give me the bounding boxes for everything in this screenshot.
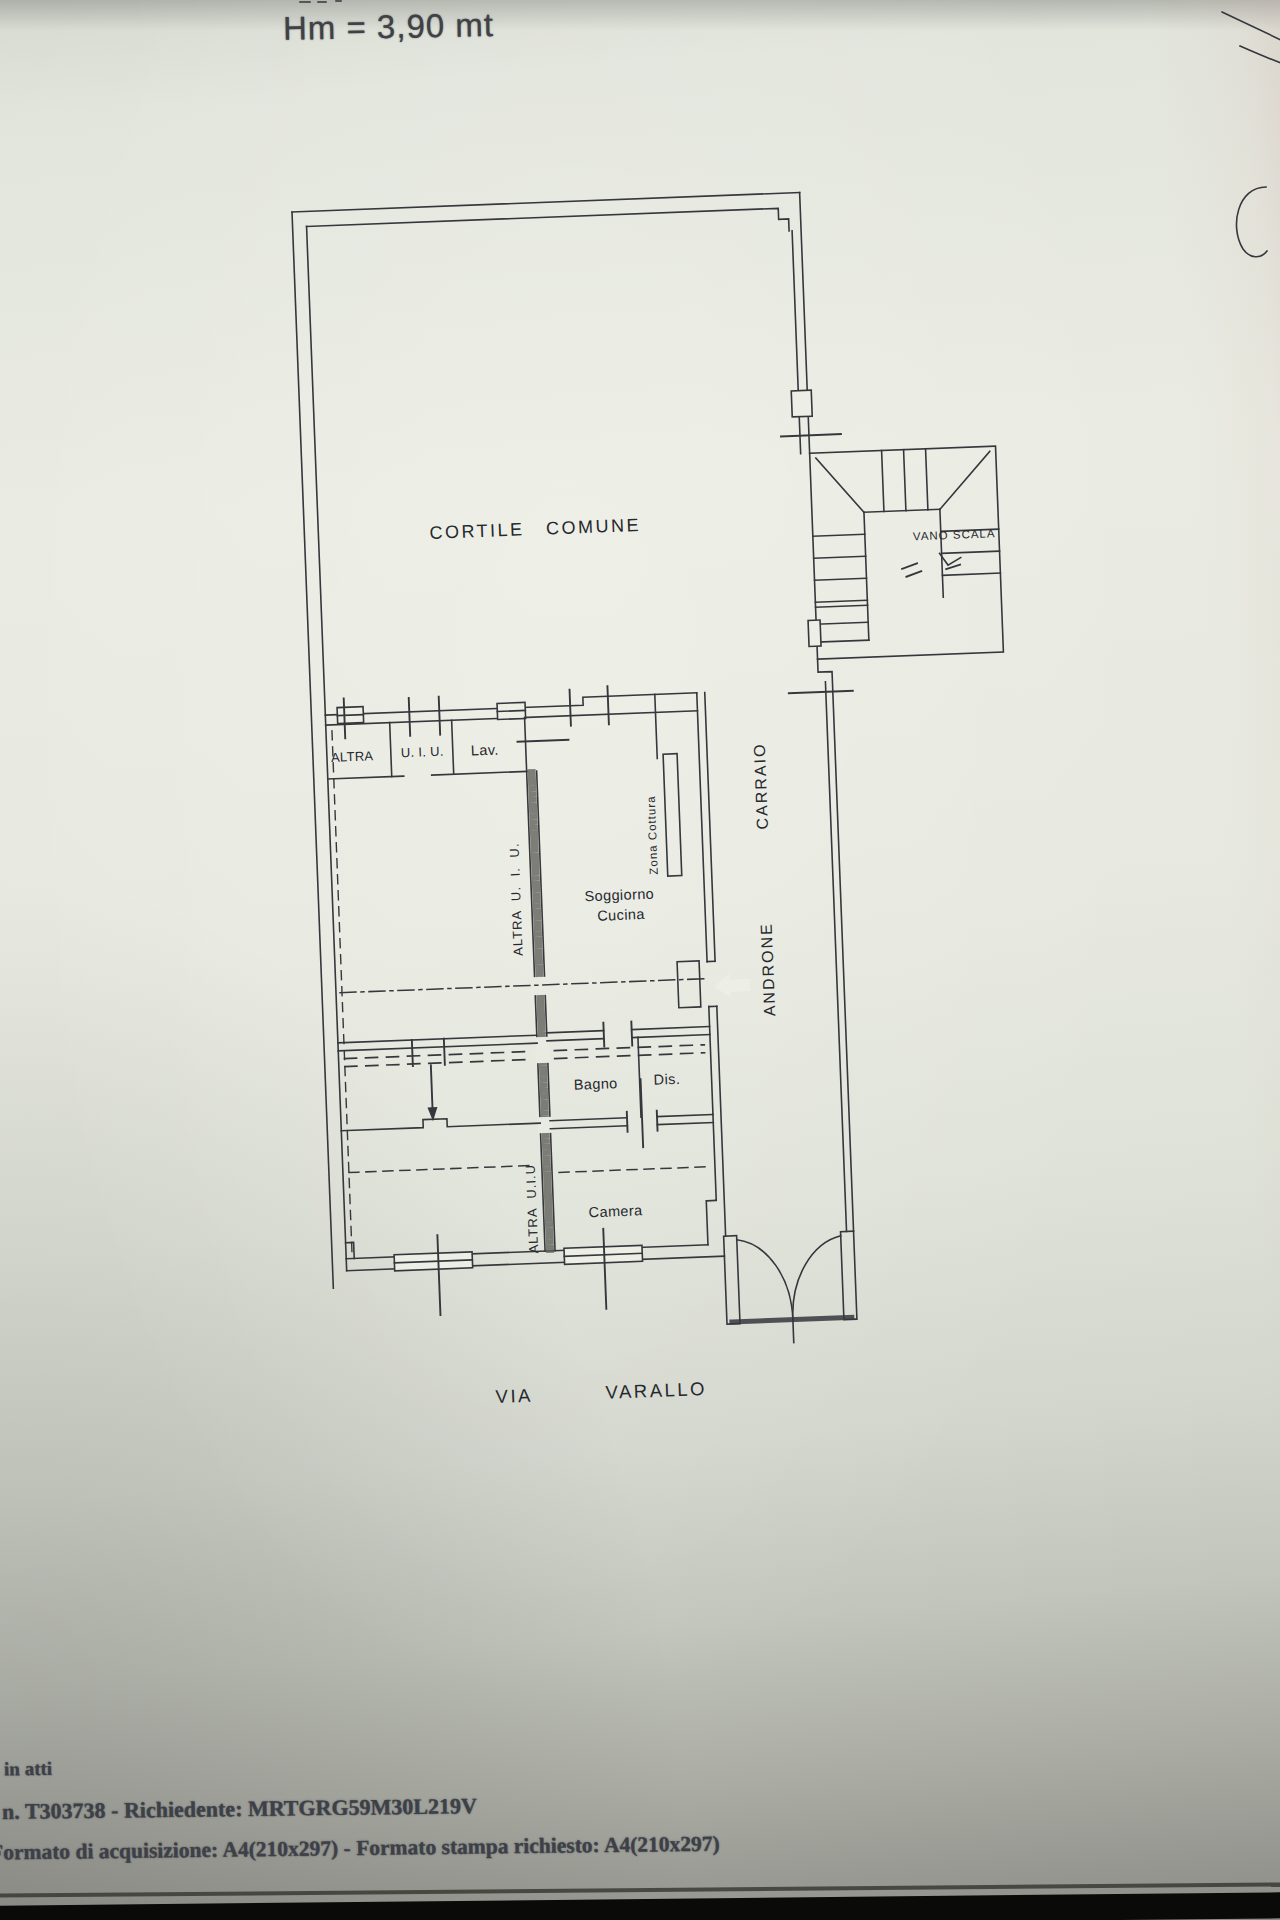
living-label-line1: Soggiorno	[584, 886, 654, 905]
cooking-area-label: Zona Cottura	[645, 795, 660, 875]
living-label-line2: Cucina	[597, 906, 646, 924]
top-uiu-label: U. I. U.	[401, 744, 444, 761]
lower-left-unit-label: ALTRA U.I.U	[523, 1164, 541, 1254]
bedroom-label: Camera	[588, 1202, 643, 1220]
courtyard-walls	[292, 191, 873, 1288]
closet-label: Dis.	[653, 1071, 680, 1088]
footer-note: in atti	[4, 1758, 52, 1781]
courtyard-label: CORTILE COMUNE	[429, 515, 641, 543]
cropped-text-fragment	[300, 1, 341, 2]
entrance-arrow-icon	[714, 973, 751, 998]
laundry-label: Lav.	[470, 741, 499, 758]
pen-mark-corner-2	[1240, 46, 1280, 63]
scanned-floorplan-photo: Hm = 3,90 mt CORTILE COMUNE	[0, 0, 1280, 1920]
top-altra-label: ALTRA	[331, 748, 374, 765]
upper-left-unit-label: ALTRA U. I. U.	[506, 842, 525, 956]
photo-artifacts	[300, 1, 1280, 257]
stair-direction-arrow-icon	[902, 553, 962, 577]
entry-hall-label-carraio: CARRAIO	[751, 742, 771, 829]
pen-mark-corner	[1222, 12, 1280, 40]
floorplan-drawing: CORTILE COMUNE VANO SCALA	[0, 0, 1280, 1920]
entry-hall-label-androne: ANDRONE	[758, 922, 779, 1017]
street-label-via: VIA	[495, 1385, 533, 1407]
entry-hall-outer-wall	[788, 658, 874, 1233]
stairwell: VANO SCALA	[802, 446, 1004, 659]
gate-double-door	[724, 1231, 858, 1345]
street-label-varallo: VARALLO	[605, 1378, 707, 1403]
pen-mark-c-stroke	[1236, 187, 1267, 257]
stairwell-label: VANO SCALA	[913, 527, 996, 542]
bath-label: Bagno	[573, 1075, 618, 1093]
floor-plan-group: CORTILE COMUNE VANO SCALA	[292, 185, 1032, 1413]
cooking-area	[655, 693, 701, 1008]
